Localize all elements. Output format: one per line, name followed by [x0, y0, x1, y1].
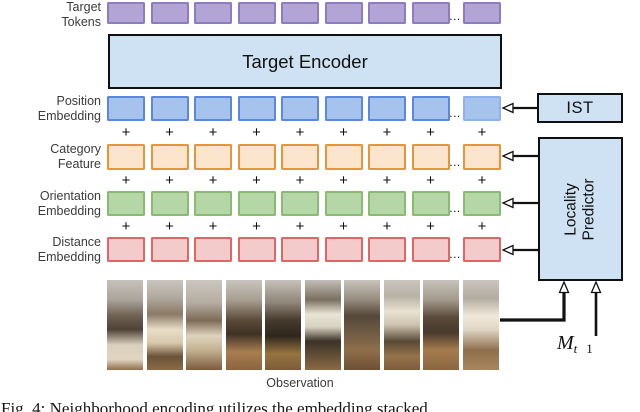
distance-embedding-token — [151, 237, 189, 262]
ist-box: IST — [537, 93, 623, 123]
orientation-embedding-token — [238, 191, 276, 216]
category-feature-token — [281, 144, 319, 170]
target-encoder-box: Target Encoder — [108, 34, 502, 89]
observation-image — [186, 280, 222, 370]
ellipsis: ... — [447, 155, 463, 169]
distance-embedding-token — [238, 237, 276, 262]
plus-operator: + — [423, 219, 439, 235]
figure-caption: Fig. 4: Neighborhood encoding utilizes t… — [1, 399, 640, 412]
ellipsis: ... — [447, 201, 463, 215]
plus-operator: + — [474, 125, 490, 141]
ellipsis: ... — [447, 106, 463, 120]
label-line: Embedding — [0, 204, 101, 219]
figure-canvas: Target Tokens Position Embedding Categor… — [0, 0, 640, 412]
label-line: Target — [0, 0, 101, 15]
plus-operator: + — [336, 173, 352, 189]
plus-operator: + — [118, 173, 134, 189]
distance-embedding-token — [194, 237, 232, 262]
label-line: Embedding — [0, 250, 101, 265]
distance-embedding-token-final — [463, 237, 501, 262]
observation-image — [107, 280, 143, 370]
plus-operator: + — [162, 125, 178, 141]
category-feature-token — [368, 144, 406, 170]
label-orientation-embedding: Orientation Embedding — [0, 189, 101, 218]
target-token — [325, 2, 363, 24]
plus-operator: + — [118, 125, 134, 141]
observation-image — [305, 280, 341, 370]
category-feature-token — [151, 144, 189, 170]
target-token — [194, 2, 232, 24]
label-line: Embedding — [0, 109, 101, 124]
category-feature-token — [325, 144, 363, 170]
target-token-final — [463, 2, 501, 24]
orientation-embedding-token — [281, 191, 319, 216]
connector-observation-to-locality — [500, 293, 564, 320]
position-embedding-token — [281, 96, 319, 121]
plus-operator: + — [292, 173, 308, 189]
ist-label: IST — [566, 99, 593, 118]
category-feature-token — [238, 144, 276, 170]
category-feature-token-final — [463, 144, 501, 170]
position-embedding-token — [151, 96, 189, 121]
target-token — [151, 2, 189, 24]
label-distance-embedding: Distance Embedding — [0, 235, 101, 264]
locality-predictor-box: Locality Predictor — [538, 137, 623, 281]
plus-operator: + — [423, 125, 439, 141]
plus-operator: + — [205, 219, 221, 235]
orientation-embedding-token — [107, 191, 145, 216]
label-position-embedding: Position Embedding — [0, 94, 101, 123]
orientation-embedding-token — [151, 191, 189, 216]
target-token — [107, 2, 145, 24]
position-embedding-token — [107, 96, 145, 121]
category-feature-token — [107, 144, 145, 170]
position-embedding-token — [194, 96, 232, 121]
observation-image — [463, 280, 499, 370]
observation-label: Observation — [240, 376, 360, 390]
plus-operator: + — [249, 219, 265, 235]
plus-operator: + — [292, 219, 308, 235]
plus-operator: + — [162, 219, 178, 235]
orientation-embedding-token — [194, 191, 232, 216]
arrowhead-icon — [503, 152, 513, 161]
distance-embedding-token — [107, 237, 145, 262]
plus-operator: + — [423, 173, 439, 189]
math-subscript-1: 1 — [586, 341, 593, 356]
distance-embedding-token — [325, 237, 363, 262]
label-line: Distance — [0, 235, 101, 250]
ellipsis: ... — [447, 247, 463, 261]
category-feature-token — [412, 144, 450, 170]
distance-embedding-token — [368, 237, 406, 262]
orientation-embedding-token — [368, 191, 406, 216]
plus-operator: + — [336, 219, 352, 235]
label-line: Tokens — [0, 15, 101, 30]
label-category-feature: Category Feature — [0, 142, 101, 171]
plus-operator: + — [249, 173, 265, 189]
position-embedding-token — [412, 96, 450, 121]
position-embedding-token — [325, 96, 363, 121]
plus-operator: + — [118, 219, 134, 235]
label-line: Orientation — [0, 189, 101, 204]
arrowhead-icon — [503, 199, 513, 208]
position-embedding-token — [238, 96, 276, 121]
target-token — [368, 2, 406, 24]
locality-predictor-label: Locality Predictor — [563, 178, 598, 240]
target-token — [412, 2, 450, 24]
label-line: Feature — [0, 157, 101, 172]
position-embedding-token — [368, 96, 406, 121]
target-encoder-label: Target Encoder — [242, 51, 367, 73]
label-line: Position — [0, 94, 101, 109]
memory-math-label: Mt1 — [557, 332, 593, 357]
distance-embedding-token — [412, 237, 450, 262]
orientation-embedding-token-final — [463, 191, 501, 216]
observation-image — [265, 280, 301, 370]
math-subscript-t: t — [574, 341, 578, 356]
plus-operator: + — [474, 173, 490, 189]
observation-image — [226, 280, 262, 370]
plus-operator: + — [379, 219, 395, 235]
orientation-embedding-token — [325, 191, 363, 216]
math-base: M — [557, 332, 574, 354]
ellipsis: ... — [447, 9, 463, 23]
arrowhead-icon — [560, 282, 569, 293]
plus-operator: + — [379, 173, 395, 189]
plus-operator: + — [474, 219, 490, 235]
distance-embedding-token — [281, 237, 319, 262]
position-embedding-token-final — [463, 96, 501, 121]
plus-operator: + — [205, 173, 221, 189]
arrowhead-icon — [503, 104, 513, 113]
label-target-tokens: Target Tokens — [0, 0, 101, 29]
observation-image — [147, 280, 183, 370]
category-feature-token — [194, 144, 232, 170]
plus-operator: + — [292, 125, 308, 141]
observation-image — [384, 280, 420, 370]
plus-operator: + — [336, 125, 352, 141]
target-token — [281, 2, 319, 24]
label-line: Category — [0, 142, 101, 157]
plus-operator: + — [162, 173, 178, 189]
arrowhead-icon — [503, 246, 513, 255]
plus-operator: + — [249, 125, 265, 141]
plus-operator: + — [205, 125, 221, 141]
orientation-embedding-token — [412, 191, 450, 216]
arrowhead-icon — [592, 282, 601, 293]
target-token — [238, 2, 276, 24]
observation-image — [423, 280, 459, 370]
plus-operator: + — [379, 125, 395, 141]
observation-image — [344, 280, 380, 370]
